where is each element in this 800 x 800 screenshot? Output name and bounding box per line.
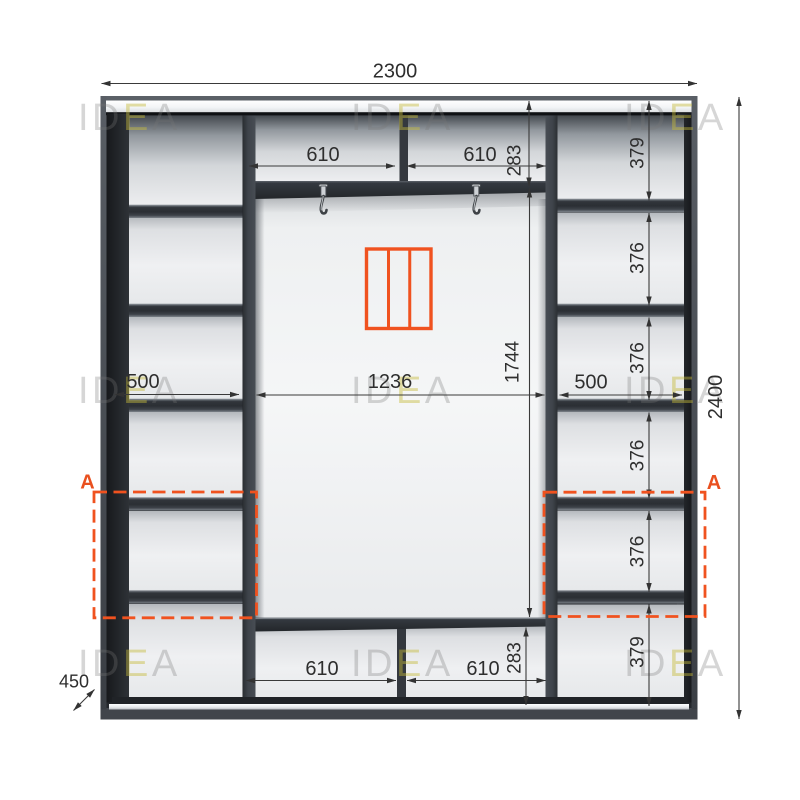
svg-text:283: 283 bbox=[505, 642, 526, 674]
svg-text:A: A bbox=[80, 472, 94, 494]
svg-text:379: 379 bbox=[628, 636, 649, 668]
svg-text:1236: 1236 bbox=[368, 371, 413, 393]
svg-text:450: 450 bbox=[59, 672, 89, 692]
svg-text:376: 376 bbox=[628, 536, 649, 568]
svg-text:500: 500 bbox=[126, 371, 159, 393]
svg-text:610: 610 bbox=[306, 144, 339, 166]
svg-text:376: 376 bbox=[628, 342, 649, 374]
svg-text:IDEA: IDEA bbox=[78, 643, 181, 685]
svg-text:2300: 2300 bbox=[373, 61, 418, 83]
svg-text:IDEA: IDEA bbox=[624, 97, 727, 139]
svg-text:376: 376 bbox=[628, 440, 649, 472]
svg-text:500: 500 bbox=[574, 372, 607, 394]
svg-text:283: 283 bbox=[505, 145, 526, 177]
svg-text:2400: 2400 bbox=[705, 375, 727, 420]
svg-text:IDEA: IDEA bbox=[351, 97, 454, 139]
svg-text:610: 610 bbox=[463, 144, 496, 166]
svg-text:IDEA: IDEA bbox=[78, 97, 181, 139]
svg-text:610: 610 bbox=[466, 658, 499, 680]
svg-text:1744: 1744 bbox=[503, 340, 524, 383]
svg-text:379: 379 bbox=[628, 137, 649, 169]
svg-text:IDEA: IDEA bbox=[351, 643, 454, 685]
svg-text:A: A bbox=[707, 472, 721, 494]
svg-text:610: 610 bbox=[305, 658, 338, 680]
svg-text:376: 376 bbox=[628, 242, 649, 274]
